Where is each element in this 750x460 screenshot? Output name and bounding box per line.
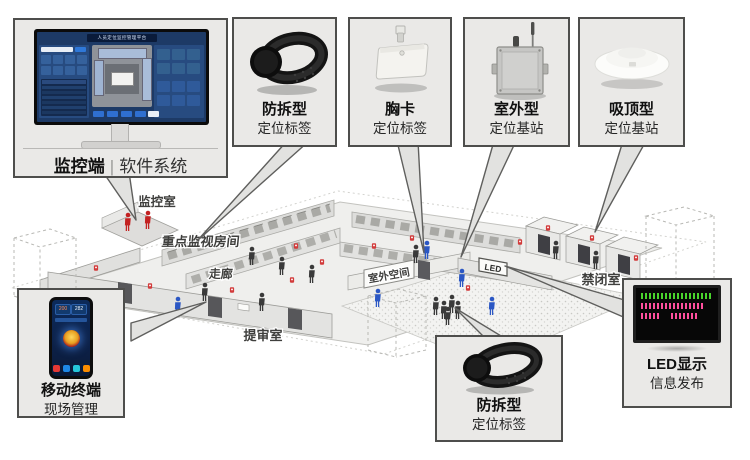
app-icon: [53, 365, 60, 372]
app-icon: [73, 365, 80, 372]
monitor-panel-label: 监控端|软件系统: [15, 152, 226, 177]
led-text-line-green: [641, 293, 711, 299]
map-building: [94, 60, 104, 96]
phone-image: 200 282: [19, 290, 123, 382]
callout-antitamper-tag: 防拆型 定位标签: [232, 17, 337, 147]
callout-subtitle: 定位标签: [258, 120, 312, 138]
led-panel-title: LED显示: [647, 356, 707, 375]
led-shadow: [646, 345, 708, 352]
callout-subtitle: 定位标签: [373, 120, 427, 138]
phone-panel: 200 282 移动终端 现场管理: [17, 288, 125, 418]
dashboard-search-input: [41, 47, 73, 52]
label-corridor: 走廊: [208, 266, 233, 281]
dashboard-icon-grid: [41, 55, 51, 64]
phone-app-row: [52, 365, 90, 372]
phone-status-bar: [55, 318, 87, 322]
callout-subtitle: 定位基站: [490, 120, 544, 138]
app-icon: [63, 365, 70, 372]
phone-screen: 200 282: [52, 300, 90, 376]
monitor-image: 人员定位监控管理平台: [34, 29, 209, 125]
callout-title: 防拆型: [262, 101, 307, 120]
label-separator: |: [110, 157, 114, 176]
led-screen: [633, 285, 721, 343]
police-emblem-icon: [63, 330, 80, 347]
phone-stat-left: 200: [55, 304, 71, 315]
callout-ceiling-station: 吸顶型 定位基站: [578, 17, 685, 147]
dashboard-right-panel: [154, 45, 204, 118]
dashboard-table: [41, 79, 87, 116]
led-text-line-pink: [641, 303, 705, 309]
outdoor-station-image: [465, 19, 568, 101]
callout-subtitle: 定位基站: [605, 120, 659, 138]
dashboard-icon-grid: [157, 49, 170, 60]
map-center-building: [111, 72, 134, 86]
led-panel-subtitle: 信息发布: [650, 375, 704, 393]
dashboard-title: 人员定位监控管理平台: [87, 34, 157, 42]
dashboard-left-panel: [39, 45, 89, 118]
label-confinement-room: 禁闭室: [581, 272, 620, 287]
led-text-line-pink-2: [641, 313, 713, 319]
dashboard-screen: 人员定位监控管理平台: [37, 32, 206, 122]
dashboard-table-rows: [42, 86, 86, 89]
callout-title: 防拆型: [476, 397, 521, 416]
monitor-stand-neck: [111, 124, 129, 142]
callout-antitamper-tag-bottom: 防拆型 定位标签: [435, 335, 563, 442]
badge-image: [350, 19, 450, 101]
callout-title: 室外型: [494, 101, 539, 120]
app-icon: [83, 365, 90, 372]
dashboard-table-header: [42, 80, 86, 84]
dashboard-buttons: [93, 111, 104, 117]
callout-badge-tag: 胸卡 定位标签: [348, 17, 452, 147]
monitor-software-panel: 人员定位监控管理平台: [13, 18, 228, 178]
panel-divider: [23, 148, 218, 149]
led-screen-image: [624, 280, 730, 356]
dashboard-search-button: [75, 47, 86, 52]
connector-ceiling-station: [595, 141, 646, 232]
callout-title: 吸顶型: [609, 101, 654, 120]
led-display-panel: LED显示 信息发布: [622, 278, 732, 408]
monitor-label-primary: 监控端: [54, 157, 105, 176]
ceiling-station-image: [580, 19, 683, 101]
callout-outdoor-station: 室外型 定位基站: [463, 17, 570, 147]
dashboard-map: [92, 45, 152, 107]
map-building: [98, 48, 147, 59]
monitor-label-secondary: 软件系统: [119, 157, 187, 176]
infographic-canvas: 监控室 重点监视房间 走廊 室外空间 LED 禁闭室 提审室 人员定位监控管理平…: [0, 0, 750, 460]
phone-stat-right: 282: [71, 304, 87, 315]
label-interrogation-room: 提审室: [243, 328, 282, 343]
wristband-image: [234, 19, 335, 101]
desk: [238, 303, 249, 311]
map-building: [142, 58, 152, 101]
phone-panel-subtitle: 现场管理: [44, 401, 98, 419]
wristband-image: [437, 337, 561, 397]
phone-panel-title: 移动终端: [41, 382, 101, 401]
label-monitor-room: 监控室: [138, 194, 176, 209]
callout-title: 胸卡: [385, 101, 415, 120]
callout-subtitle: 定位标签: [472, 416, 526, 434]
